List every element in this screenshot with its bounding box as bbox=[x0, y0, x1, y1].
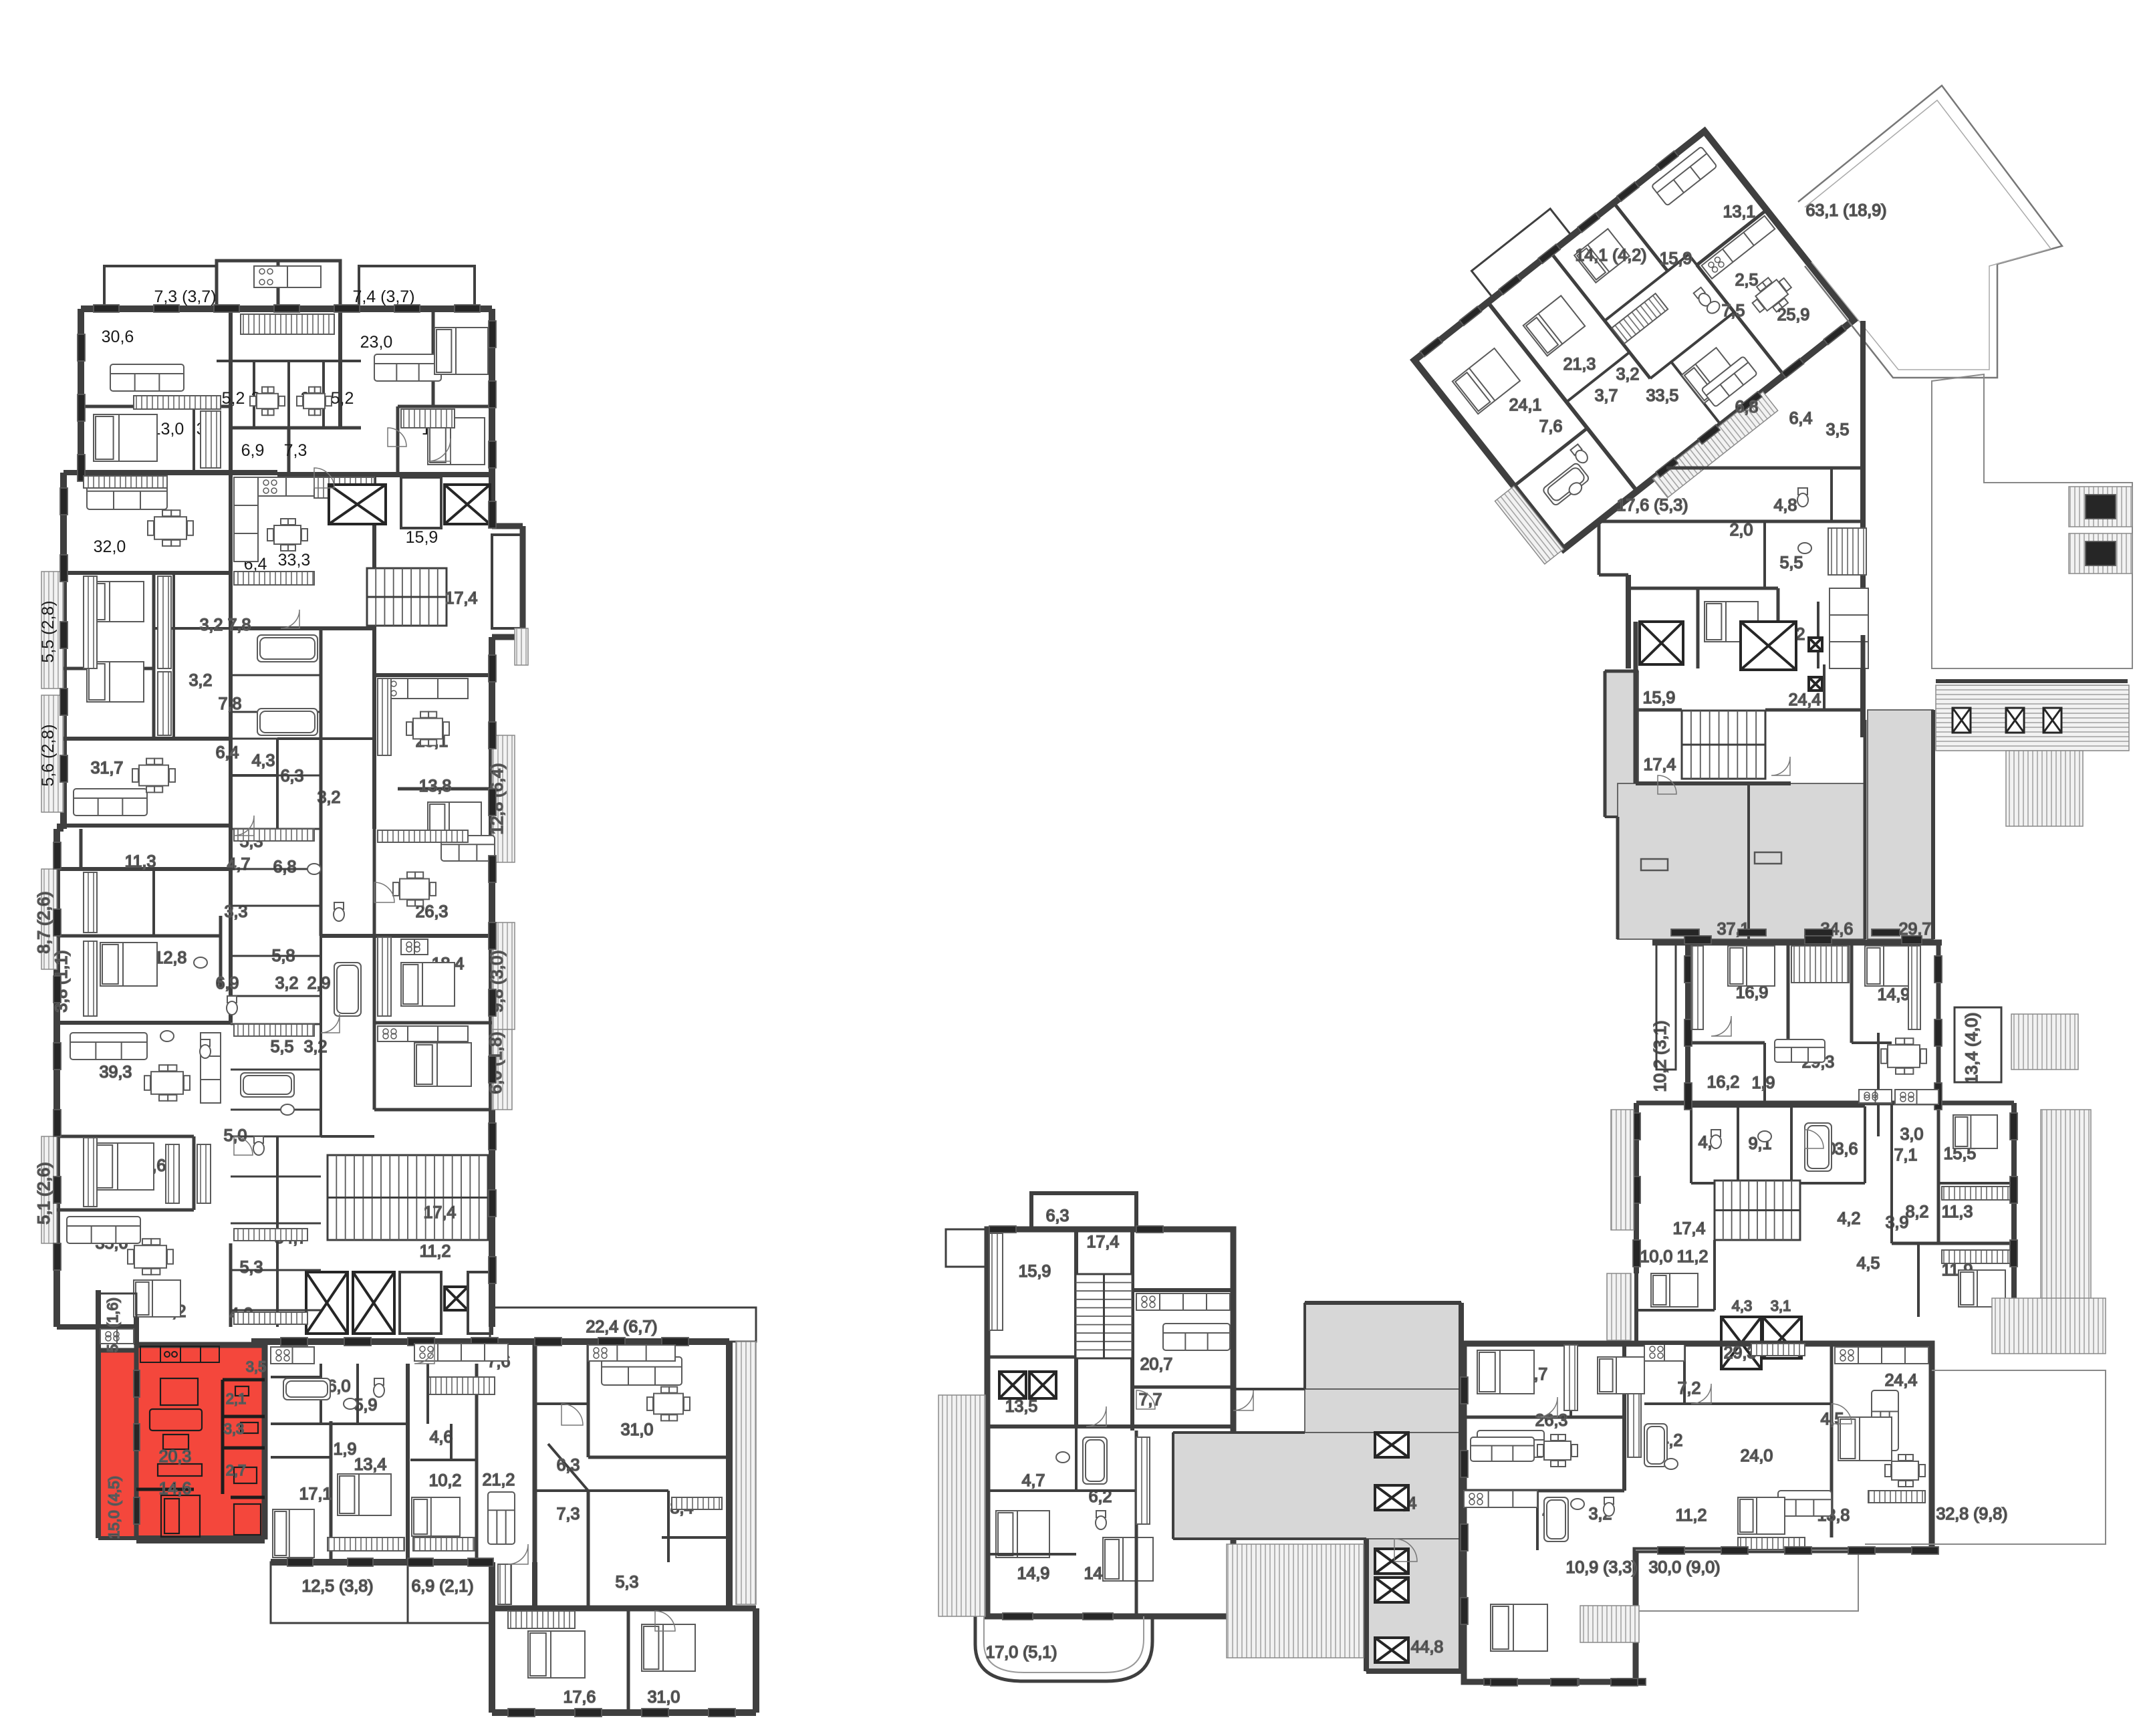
svg-text:22,4 (6,7): 22,4 (6,7) bbox=[586, 1318, 657, 1336]
svg-text:11,2: 11,2 bbox=[1677, 1247, 1709, 1266]
svg-text:3,0: 3,0 bbox=[1900, 1125, 1924, 1144]
svg-text:3,9: 3,9 bbox=[1886, 1213, 1909, 1232]
svg-text:15,9: 15,9 bbox=[1660, 249, 1692, 268]
svg-text:25,9: 25,9 bbox=[1777, 305, 1810, 324]
svg-text:33,3: 33,3 bbox=[278, 551, 311, 570]
svg-text:5,3: 5,3 bbox=[616, 1573, 639, 1592]
svg-text:17,4: 17,4 bbox=[445, 589, 478, 608]
svg-text:4,5: 4,5 bbox=[1857, 1254, 1880, 1273]
svg-text:13,4: 13,4 bbox=[354, 1455, 387, 1474]
svg-text:4,3: 4,3 bbox=[252, 751, 275, 770]
svg-text:2,1: 2,1 bbox=[226, 1390, 247, 1407]
svg-text:17,0 (5,1): 17,0 (5,1) bbox=[985, 1643, 1057, 1662]
svg-text:14,9: 14,9 bbox=[1878, 985, 1910, 1004]
svg-text:7,5: 7,5 bbox=[1722, 301, 1745, 320]
svg-text:7,3: 7,3 bbox=[557, 1505, 580, 1523]
svg-text:3,2: 3,2 bbox=[304, 1037, 328, 1056]
svg-text:3,3: 3,3 bbox=[224, 1420, 245, 1437]
svg-text:2,9: 2,9 bbox=[307, 974, 331, 993]
svg-text:15,0 (4,5): 15,0 (4,5) bbox=[106, 1476, 122, 1539]
svg-text:33,5: 33,5 bbox=[1646, 386, 1679, 405]
svg-text:3,6: 3,6 bbox=[1835, 1140, 1858, 1158]
svg-text:31,0: 31,0 bbox=[621, 1420, 654, 1439]
svg-text:6,3: 6,3 bbox=[557, 1456, 580, 1475]
svg-text:17,4: 17,4 bbox=[1673, 1219, 1706, 1238]
svg-text:5,6 (2,8): 5,6 (2,8) bbox=[39, 724, 57, 786]
svg-text:8,2: 8,2 bbox=[1906, 1203, 1929, 1221]
svg-text:30,6: 30,6 bbox=[102, 328, 134, 346]
svg-text:7,8: 7,8 bbox=[219, 695, 242, 713]
svg-text:2,5: 2,5 bbox=[1735, 271, 1759, 289]
svg-text:3,5: 3,5 bbox=[1826, 420, 1850, 439]
svg-text:13,5: 13,5 bbox=[1005, 1397, 1038, 1416]
svg-text:15,9: 15,9 bbox=[1643, 689, 1676, 707]
svg-text:7,2: 7,2 bbox=[1678, 1379, 1701, 1398]
svg-text:3,5: 3,5 bbox=[246, 1358, 267, 1375]
svg-text:4,6: 4,6 bbox=[430, 1428, 453, 1447]
svg-text:31,0: 31,0 bbox=[648, 1688, 680, 1707]
svg-text:10,2 (3,1): 10,2 (3,1) bbox=[1651, 1020, 1670, 1092]
svg-text:39,3: 39,3 bbox=[100, 1063, 132, 1082]
svg-text:10,9 (3,3): 10,9 (3,3) bbox=[1565, 1558, 1637, 1577]
svg-text:20,7: 20,7 bbox=[1140, 1355, 1173, 1374]
svg-text:32,8 (9,8): 32,8 (9,8) bbox=[1936, 1505, 2007, 1523]
svg-text:32,0: 32,0 bbox=[94, 537, 126, 556]
svg-text:3,2: 3,2 bbox=[1616, 365, 1640, 384]
svg-text:21,3: 21,3 bbox=[1563, 355, 1596, 374]
svg-text:13,8: 13,8 bbox=[419, 777, 452, 795]
svg-text:3,7: 3,7 bbox=[1595, 386, 1618, 405]
svg-text:11,3: 11,3 bbox=[125, 852, 156, 871]
svg-text:7,6: 7,6 bbox=[1539, 417, 1563, 436]
svg-text:14,9: 14,9 bbox=[1017, 1564, 1050, 1583]
svg-text:63,1 (18,9): 63,1 (18,9) bbox=[1806, 201, 1887, 220]
svg-text:3,2: 3,2 bbox=[275, 974, 299, 993]
svg-text:17,4: 17,4 bbox=[424, 1203, 457, 1222]
svg-text:11,2: 11,2 bbox=[420, 1242, 451, 1261]
svg-text:6,9: 6,9 bbox=[241, 441, 265, 460]
svg-text:4,7: 4,7 bbox=[227, 855, 251, 874]
svg-text:7,8: 7,8 bbox=[228, 616, 251, 634]
svg-text:15,9: 15,9 bbox=[406, 528, 438, 547]
svg-text:14,6: 14,6 bbox=[159, 1479, 192, 1498]
svg-text:23,0: 23,0 bbox=[360, 333, 393, 352]
svg-text:11,3: 11,3 bbox=[1942, 1203, 1973, 1221]
svg-text:10,2: 10,2 bbox=[429, 1471, 462, 1490]
svg-text:7,7: 7,7 bbox=[1139, 1390, 1162, 1409]
svg-text:7,1: 7,1 bbox=[1894, 1146, 1918, 1164]
svg-text:24,1: 24,1 bbox=[1509, 396, 1542, 414]
svg-text:13,1: 13,1 bbox=[1723, 203, 1756, 221]
svg-text:5,5: 5,5 bbox=[271, 1037, 294, 1056]
svg-text:21,2: 21,2 bbox=[483, 1471, 515, 1489]
svg-text:17,1: 17,1 bbox=[299, 1485, 332, 1503]
svg-text:17,4: 17,4 bbox=[1644, 755, 1676, 774]
svg-text:12,8: 12,8 bbox=[154, 949, 187, 967]
svg-text:12,5 (3,8): 12,5 (3,8) bbox=[301, 1577, 373, 1596]
svg-text:11,2: 11,2 bbox=[1676, 1506, 1707, 1525]
svg-text:2,0: 2,0 bbox=[1730, 521, 1753, 539]
svg-text:7,4 (3,7): 7,4 (3,7) bbox=[352, 287, 414, 306]
svg-text:3,2: 3,2 bbox=[189, 671, 213, 690]
svg-text:4,2: 4,2 bbox=[1838, 1209, 1861, 1228]
svg-text:26,3: 26,3 bbox=[1535, 1411, 1568, 1430]
svg-text:17,6 (5,3): 17,6 (5,3) bbox=[1616, 496, 1688, 515]
svg-text:5,5 (2,8): 5,5 (2,8) bbox=[39, 600, 57, 662]
svg-text:5,2: 5,2 bbox=[222, 389, 245, 408]
svg-text:6,4: 6,4 bbox=[216, 743, 239, 762]
svg-text:14,1 (4,2): 14,1 (4,2) bbox=[1575, 246, 1646, 265]
svg-text:15,9: 15,9 bbox=[1019, 1262, 1051, 1281]
svg-text:1,9: 1,9 bbox=[334, 1440, 357, 1459]
svg-text:10,0: 10,0 bbox=[1640, 1247, 1673, 1266]
svg-text:6,3: 6,3 bbox=[1046, 1207, 1069, 1225]
svg-text:7,3 (3,7): 7,3 (3,7) bbox=[154, 287, 216, 306]
svg-text:6,8: 6,8 bbox=[1735, 398, 1759, 416]
svg-text:5,2: 5,2 bbox=[331, 389, 354, 408]
svg-text:8,7 (2,6): 8,7 (2,6) bbox=[35, 891, 53, 953]
svg-text:17,6: 17,6 bbox=[563, 1688, 596, 1707]
svg-text:5,1 (2,6): 5,1 (2,6) bbox=[35, 1162, 53, 1224]
svg-text:24,4: 24,4 bbox=[1885, 1371, 1918, 1390]
svg-text:6,9 (2,1): 6,9 (2,1) bbox=[411, 1577, 473, 1596]
svg-text:24,4: 24,4 bbox=[1789, 691, 1821, 709]
svg-text:31,7: 31,7 bbox=[91, 759, 124, 777]
svg-text:4,3: 4,3 bbox=[1732, 1297, 1753, 1314]
svg-text:30,0 (9,0): 30,0 (9,0) bbox=[1648, 1558, 1720, 1577]
svg-text:5,3: 5,3 bbox=[240, 1258, 263, 1277]
svg-text:6,4: 6,4 bbox=[1789, 409, 1813, 428]
svg-text:1,9: 1,9 bbox=[1752, 1074, 1775, 1092]
svg-text:3,1: 3,1 bbox=[1771, 1297, 1791, 1314]
svg-text:24,0: 24,0 bbox=[1741, 1447, 1773, 1465]
svg-text:44,8: 44,8 bbox=[1411, 1638, 1444, 1656]
svg-text:20,3: 20,3 bbox=[159, 1447, 192, 1466]
svg-text:4,8: 4,8 bbox=[1774, 496, 1797, 515]
svg-text:2,7: 2,7 bbox=[226, 1462, 247, 1479]
svg-text:3,2: 3,2 bbox=[200, 616, 223, 634]
svg-text:5,5: 5,5 bbox=[1780, 553, 1803, 572]
svg-text:7,3: 7,3 bbox=[284, 441, 307, 460]
svg-text:4,7: 4,7 bbox=[1022, 1471, 1045, 1490]
svg-text:16,2: 16,2 bbox=[1707, 1073, 1740, 1092]
svg-text:13,4 (4,0): 13,4 (4,0) bbox=[1963, 1012, 1981, 1084]
svg-text:6,9: 6,9 bbox=[216, 974, 239, 993]
svg-text:6,8: 6,8 bbox=[273, 858, 297, 876]
svg-text:17,4: 17,4 bbox=[1087, 1233, 1120, 1251]
